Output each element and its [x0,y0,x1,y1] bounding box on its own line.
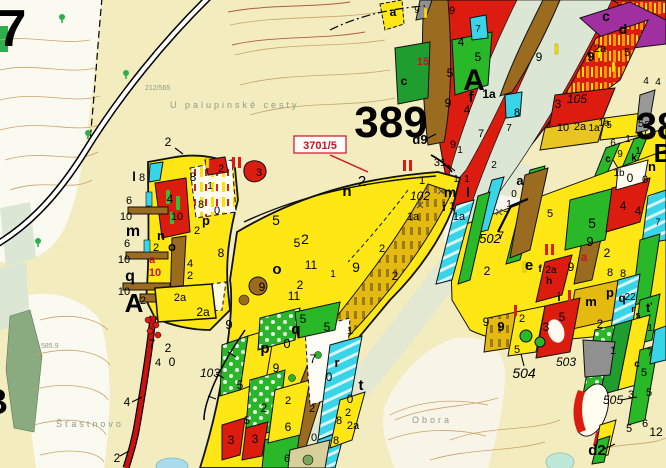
map-label: 9 [273,361,280,375]
map-label: 212/565 [145,85,170,92]
map-label: 6 [284,453,290,465]
map-label: 2 [285,395,291,407]
map-label: 5 [294,236,301,250]
map-label: m [444,184,456,200]
map-label: i [557,290,560,304]
map-label: 4 [635,204,642,218]
map-label: 9 [225,317,232,332]
map-label: 1 [625,134,631,145]
map-label: a [390,5,397,19]
map-label: 2 [345,407,351,419]
map-label: 7 [503,210,509,221]
map-label: 4 [655,77,661,88]
map-label: 2 [153,242,159,254]
map-label: 9 [449,5,455,17]
map-label: p [202,213,210,228]
map-label: 2 [140,295,146,307]
map-label: 9 [617,149,623,160]
map-label: 4 [643,76,649,87]
map-label: 7 [0,0,26,58]
map-label: 10 [118,254,130,266]
map-label: 2 [261,401,268,415]
map-label: 7 [506,123,512,134]
map-label: 0 [311,432,317,444]
map-label: 505 [603,393,623,407]
map-label: 1 [464,174,470,185]
map-label: 5 [272,212,280,228]
map-label: 102 [410,189,430,203]
map-label: 2 [392,269,399,283]
map-label: 7 [149,337,156,351]
map-label: 3 [252,432,259,446]
map-label: 22 [624,292,636,303]
map-label: 103 [200,366,220,380]
map-label: 4 [458,35,465,49]
map-label: 6 [124,238,130,250]
map-label: 8 [620,268,626,280]
yellow-bar-mark [206,158,209,168]
map-label: 8 [198,199,204,211]
map-label: 0 [642,174,648,186]
red-bar-mark [545,244,548,255]
map-label: 5 [324,320,331,334]
map-label: i [442,200,445,214]
map-label: l [132,169,136,184]
map-label: 1 [506,199,512,210]
map-label: 5 [244,415,250,427]
map-label: 2a [594,43,607,55]
map-label: U palupinské cesty [170,100,300,110]
green-dot-mark [289,375,296,382]
map-label: 10 [557,122,569,134]
map-label: c [401,74,408,88]
map-label: 3 [628,389,634,401]
red-bar-mark [568,290,571,301]
map-label: e [525,257,533,274]
map-label: 1 [449,201,455,212]
map-label: 4 [187,258,193,270]
map-label: 0 [169,355,176,369]
map-label: 2 [187,270,193,282]
yellow-bar-mark [555,44,558,54]
map-label: 5 [300,312,307,326]
map-label: p [606,285,614,300]
red-dot-mark [153,322,159,328]
map-label: d2 [588,442,606,459]
map-label: 2 [597,317,604,331]
map-label: 0 [283,336,290,351]
map-label: 7 [475,24,481,35]
red-dot-mark [155,332,161,338]
map-label: r [334,355,339,370]
map-label: 6 [642,418,648,430]
map-label: 9 [536,50,543,64]
map-label: 2a [174,292,187,304]
map-label: 1a [453,211,466,223]
map-label: Šťastnovo [56,419,124,429]
map-label: 2a [347,420,360,432]
map-label: 31 [434,157,446,169]
map-label: 8 [190,170,197,184]
map-label: ť [646,300,653,315]
map-label: 7 [310,352,317,366]
map-label: n [648,159,656,174]
map-label: 503 [556,355,576,369]
map-label: 5 [237,378,244,392]
yellow-bar-mark [612,62,615,72]
map-label: 7 [478,128,484,140]
red-bar-mark [551,244,554,255]
map-label: 1b [613,168,625,179]
map-label: 7 [647,347,653,359]
map-label: o [272,261,281,278]
map-label: 11 [288,289,301,303]
map-label: 1a [407,211,420,223]
map-label: 2 [165,135,172,149]
map-label: 6 [126,195,132,207]
map-label: 4 [167,192,174,206]
map-label: 4 [464,103,471,117]
parcel-callout-group: 3701/5 [294,136,346,153]
map-label: 1 [419,175,425,187]
map-label: 5 [624,47,630,59]
map-label: 7 [655,217,660,227]
red-dot-mark [145,317,151,323]
map-label: o [168,239,176,254]
map-label: 2 [194,225,200,237]
map-label: 1 [453,174,459,185]
map-label: s [635,310,640,320]
yellow-bar-mark [424,8,427,18]
map-label: h [546,276,552,287]
map-label: 105 [567,92,587,106]
map-label: 10 [171,211,183,223]
map-label: 9 [259,280,266,294]
map-label: 5 [641,367,647,379]
map-label: 0 [326,370,333,384]
map-label: 8 [218,246,225,260]
map-label: 2 [491,160,497,171]
map-label: 2a [574,121,587,133]
map-label: 3 [543,320,550,334]
map-label: 0 [627,171,634,185]
map-label: 4 [124,395,131,409]
map-label: 3 [228,433,235,447]
map-label: 1 [330,269,336,280]
map-label: 2a [196,305,210,319]
map-label: 10 [120,211,132,223]
map-label: 1 [347,325,353,337]
map-label: m [585,294,597,309]
map-label: 2 [604,246,611,260]
map-label: 1 [457,145,463,156]
map-label: 5 [646,387,652,399]
map-label: 1 [610,345,616,357]
map-label: 9 [483,315,490,329]
red-bar-mark [409,160,412,171]
map-label: 5 [559,310,566,324]
map-label: 2 [114,451,121,465]
map-label: a [581,250,588,264]
red-bar-mark [514,305,517,316]
map-label: 2 [379,243,385,255]
map-label: 11 [305,258,318,272]
map-label: 8 [139,172,145,184]
pond [546,453,574,468]
map-label: 2 [309,403,315,415]
red-bar-mark [232,157,235,168]
map-label: 9 [586,234,593,249]
map-label: 2 [484,264,491,278]
map-label: l [466,184,470,200]
map-label: 2 [519,313,525,325]
map-label: B [0,381,8,422]
map-label: 9 [497,319,504,334]
map-label: 5 [447,66,454,80]
map-label: c [634,359,640,370]
map-label: 15 [417,56,429,68]
map-label: 0 [347,392,354,406]
map-label: 0 [214,205,220,217]
map-label: k [631,153,637,164]
map-label: 10 [118,286,130,298]
red-bar-mark [403,160,406,171]
map-label: 504 [512,365,536,381]
map-label: 4 [155,357,161,369]
map-label: c [605,154,611,165]
map-label: 1a [598,118,610,129]
map-label: 6 [610,138,616,149]
map-label: 2a [545,265,557,276]
red-bar-mark [238,157,241,168]
map-label: 8 [607,267,613,279]
map-label: 8 [333,435,339,447]
map-label: 5 [588,215,596,231]
map-label: 10 [149,267,161,279]
map-label: 1 [207,181,213,192]
map-label: 2 [218,163,224,175]
map-label: 1 [647,323,653,334]
map-label: q [125,268,135,285]
map-label: d9 [412,132,427,147]
map-canvas[interactable]: 738938BAf4ABacdd9d2c1599475591a877993105… [0,0,666,468]
map-label: d [619,21,628,37]
map-label: n [342,183,351,200]
map-label: 2 [165,341,172,355]
map-label: Obora [412,415,452,425]
map-label: 8 [514,107,520,119]
map-label: 9 [445,96,452,110]
map-label: 5 [547,208,553,220]
map-label: a [149,254,156,266]
map-label: 3 [555,97,562,111]
map-label: 5 [475,50,482,64]
map-viewport[interactable]: 738938BAf4ABacdd9d2c1599475591a877993105… [0,0,666,468]
map-label: 5a [638,118,651,130]
map-label: 5 [514,344,520,356]
map-label: 9 [414,5,420,16]
map-label: c [602,8,610,24]
map-label: 1a [482,87,496,101]
map-label: 9 [352,259,360,275]
parcel-callout-text: 3701/5 [303,140,337,152]
map-label: 7 [498,230,504,242]
map-label: 2 [301,231,309,247]
map-label: 585.9 [41,343,59,350]
map-label: 12 [649,425,663,439]
map-label: 9 [450,139,456,151]
map-label: 9 [568,260,575,274]
map-label: n [157,228,165,243]
map-label: 6 [285,420,292,434]
map-label: 0 [511,189,517,200]
map-label: p [260,340,269,357]
map-label: 2 [358,173,366,190]
map-label: 8 [336,415,342,427]
map-label: 5 [626,423,632,435]
map-label: a [516,173,524,188]
red-dot-mark [147,328,153,334]
map-label: 3 [256,167,262,179]
map-label: 4 [620,199,627,213]
map-label: t [359,377,364,394]
